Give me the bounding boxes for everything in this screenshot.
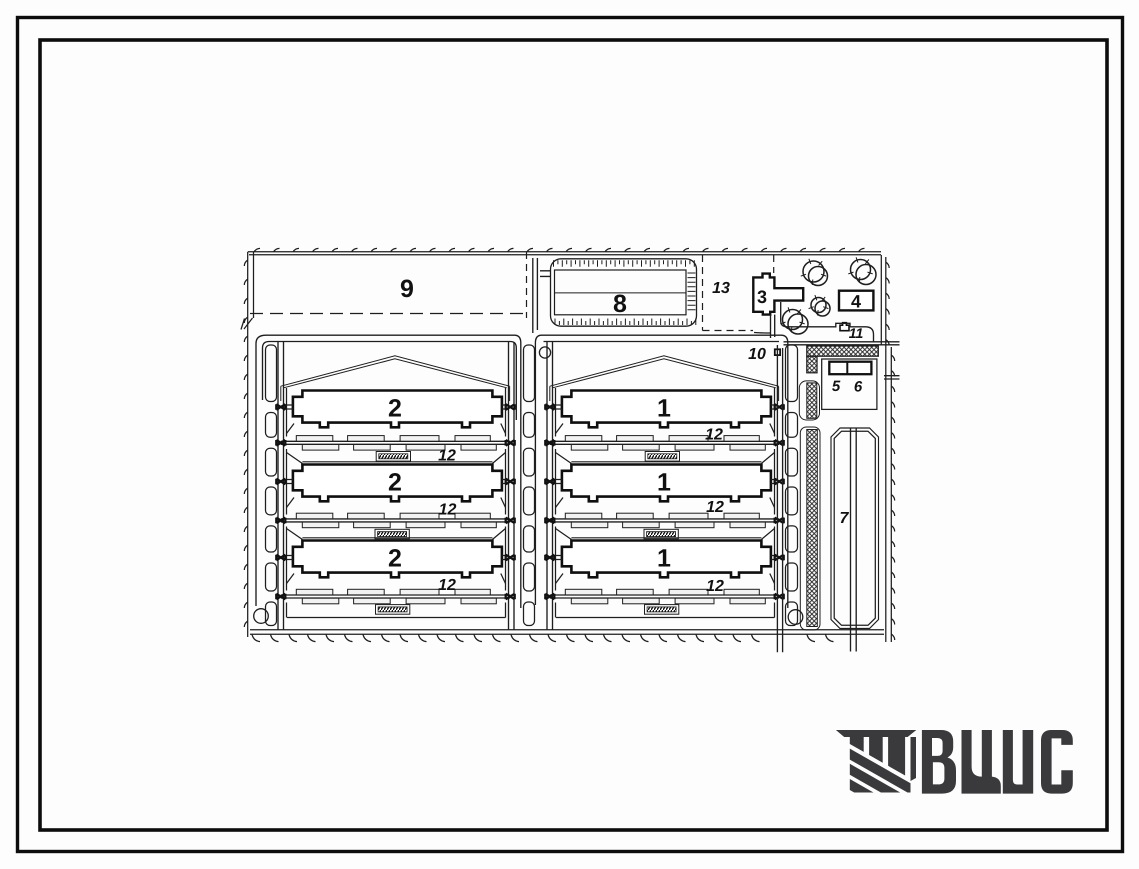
svg-text:3: 3: [757, 287, 767, 307]
svg-text:12: 12: [439, 502, 457, 519]
svg-text:7: 7: [840, 510, 850, 527]
svg-text:12: 12: [706, 578, 724, 595]
svg-text:2: 2: [388, 545, 402, 573]
svg-text:13: 13: [712, 280, 730, 297]
svg-text:1: 1: [657, 395, 671, 423]
svg-text:12: 12: [706, 499, 724, 516]
svg-text:4: 4: [851, 292, 861, 312]
svg-text:12: 12: [438, 448, 456, 465]
svg-text:5: 5: [832, 378, 841, 395]
svg-text:6: 6: [854, 379, 863, 396]
svg-text:2: 2: [388, 469, 402, 497]
svg-text:1: 1: [657, 469, 671, 497]
svg-text:8: 8: [613, 290, 627, 318]
svg-text:1: 1: [657, 545, 671, 573]
svg-text:10: 10: [748, 346, 766, 363]
svg-text:9: 9: [400, 275, 414, 303]
svg-text:12: 12: [438, 577, 456, 594]
svg-text:12: 12: [705, 427, 723, 444]
svg-text:2: 2: [388, 395, 402, 423]
